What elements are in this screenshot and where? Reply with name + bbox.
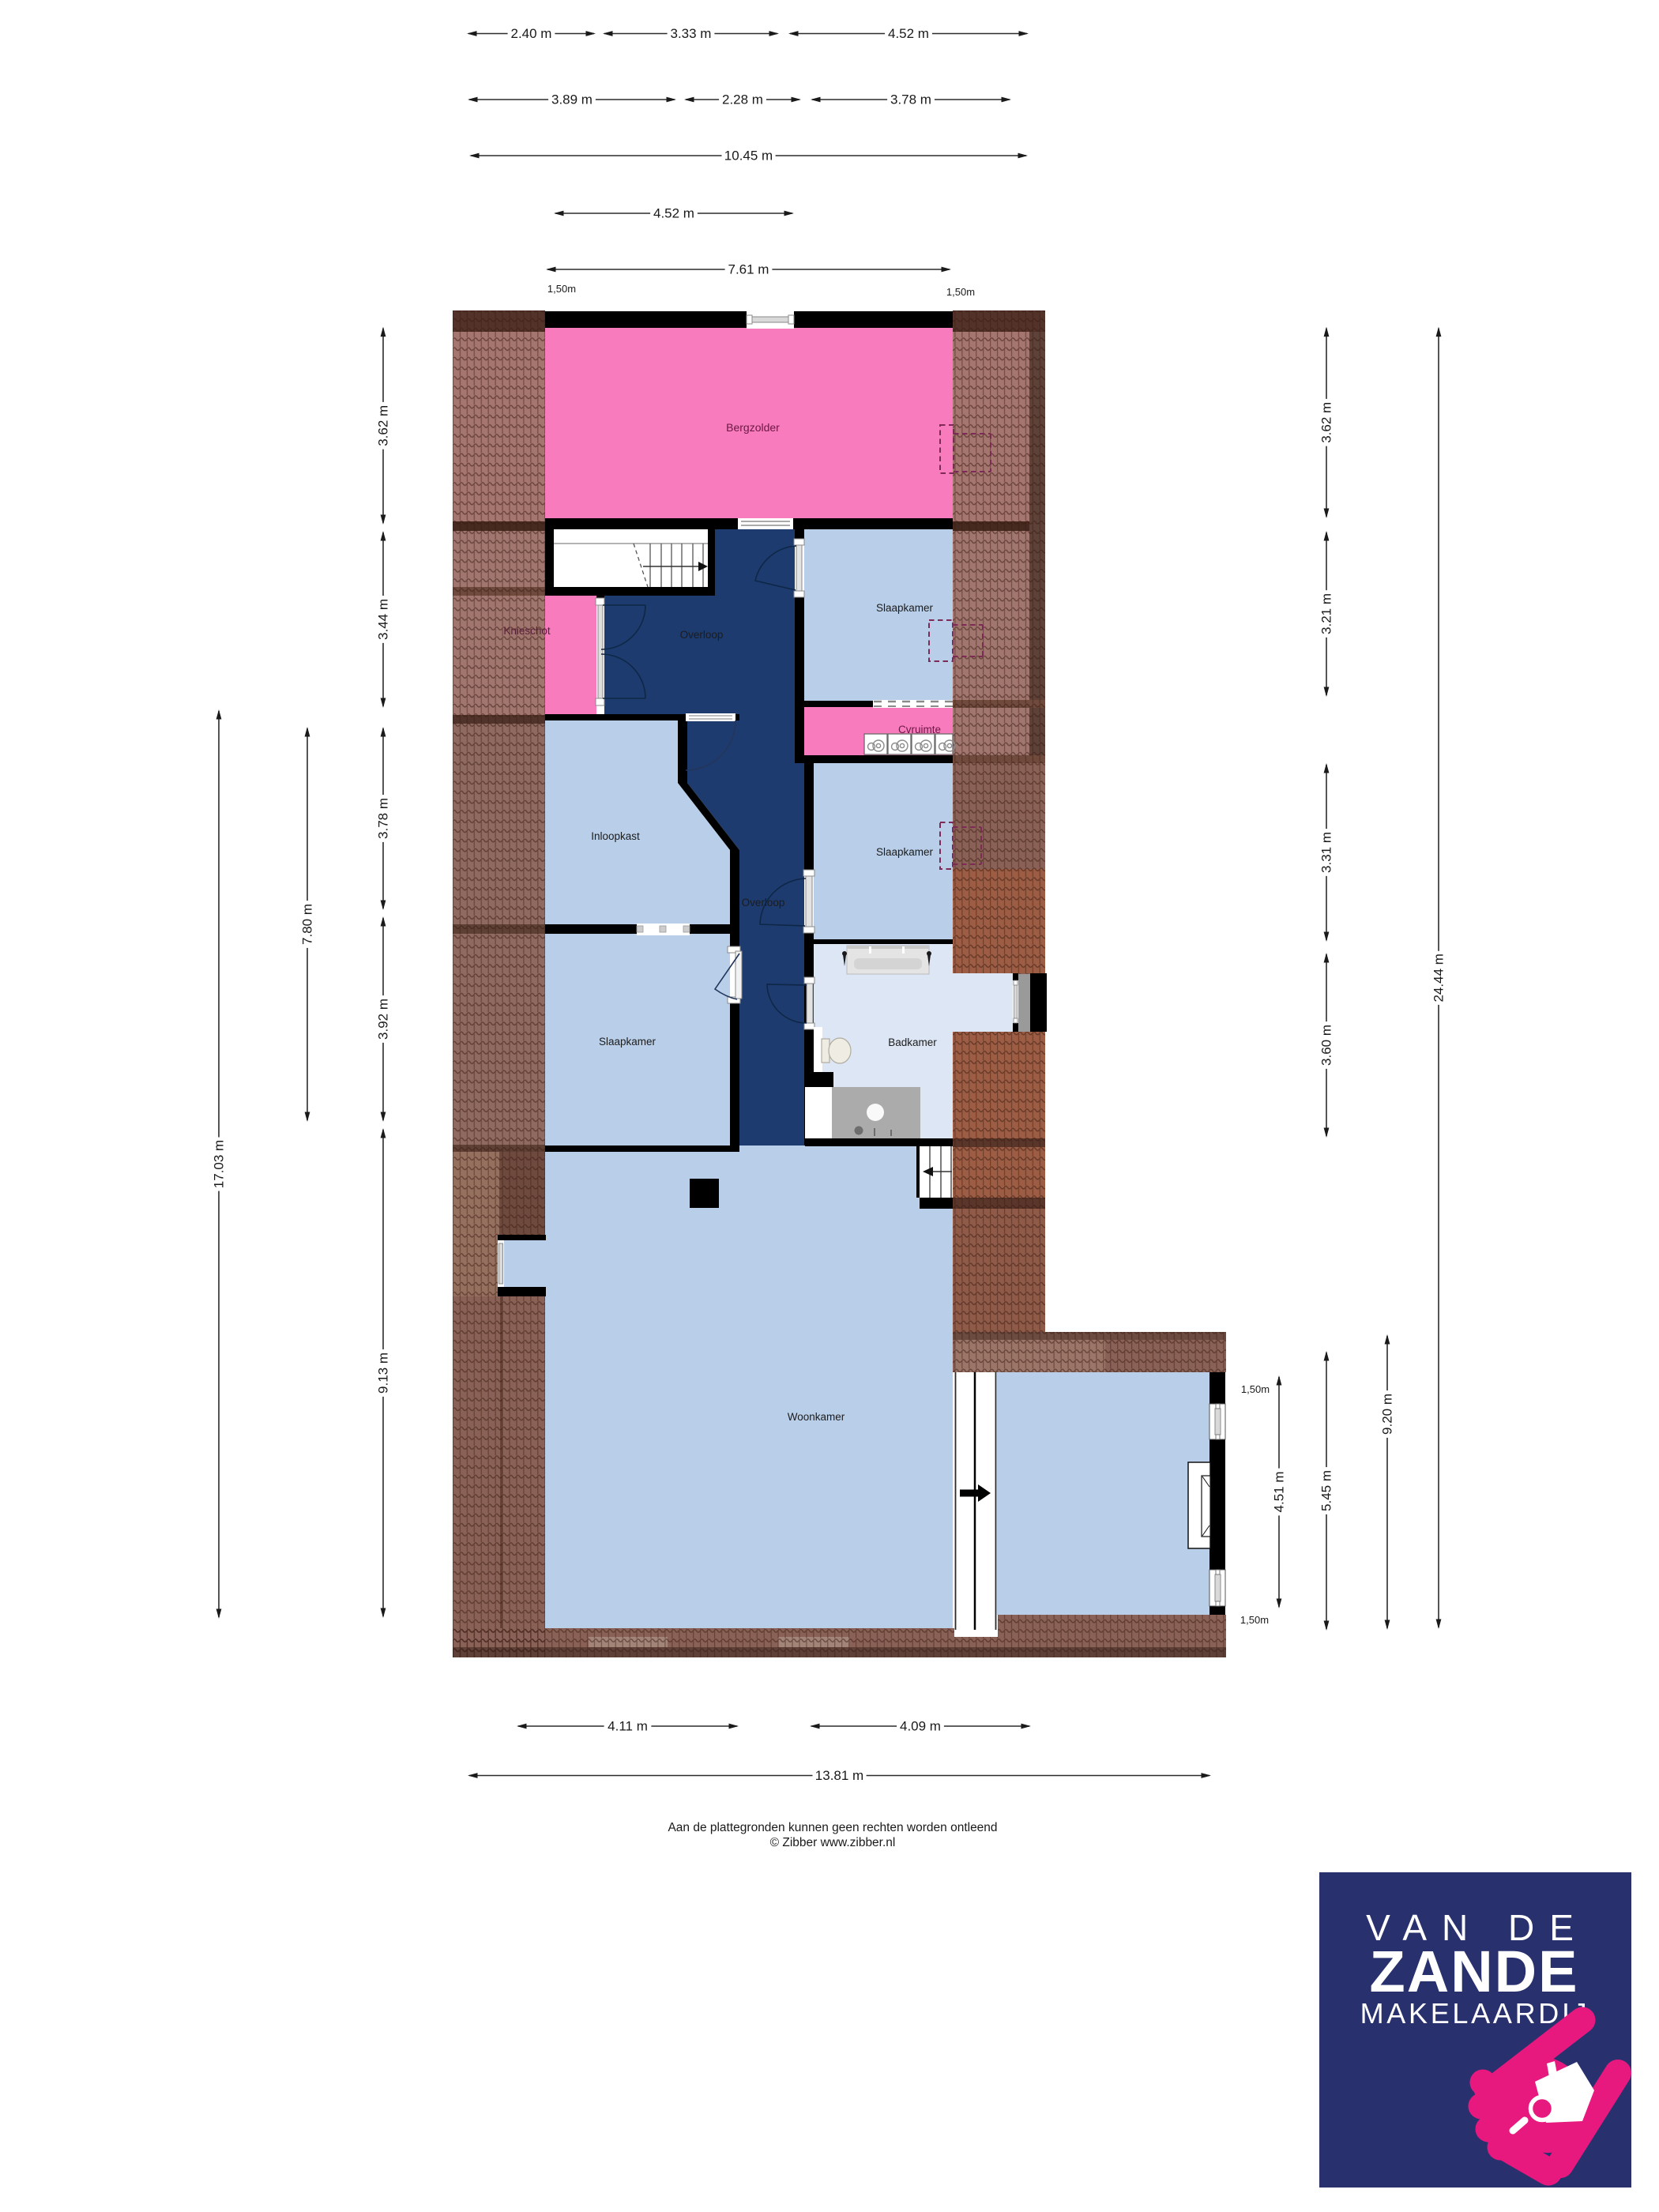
svg-text:Woonkamer: Woonkamer bbox=[788, 1411, 845, 1423]
svg-text:13.81 m: 13.81 m bbox=[815, 1768, 863, 1783]
svg-text:3.92 m: 3.92 m bbox=[376, 999, 391, 1040]
svg-text:1,50m: 1,50m bbox=[547, 283, 576, 295]
svg-text:Inloopkast: Inloopkast bbox=[591, 830, 640, 842]
svg-text:Knieschot: Knieschot bbox=[503, 625, 551, 637]
svg-text:3.21 m: 3.21 m bbox=[1319, 593, 1334, 634]
svg-text:Slaapkamer: Slaapkamer bbox=[876, 602, 934, 614]
svg-text:1,50m: 1,50m bbox=[946, 286, 975, 298]
svg-text:1,50m: 1,50m bbox=[1241, 1383, 1270, 1395]
svg-text:ZANDE: ZANDE bbox=[1370, 1939, 1579, 2004]
svg-text:3.44 m: 3.44 m bbox=[376, 599, 391, 640]
svg-text:3.78 m: 3.78 m bbox=[890, 92, 931, 107]
svg-text:© Zibber www.zibber.nl: © Zibber www.zibber.nl bbox=[770, 1836, 896, 1849]
svg-text:Badkamer: Badkamer bbox=[888, 1036, 937, 1048]
svg-text:4.52 m: 4.52 m bbox=[888, 26, 929, 41]
svg-text:7.61 m: 7.61 m bbox=[728, 262, 769, 277]
svg-text:Slaapkamer: Slaapkamer bbox=[876, 846, 934, 858]
svg-text:Aan de plattegronden kunnen ge: Aan de plattegronden kunnen geen rechten… bbox=[668, 1821, 997, 1834]
svg-text:4.52 m: 4.52 m bbox=[653, 206, 694, 221]
svg-text:2.28 m: 2.28 m bbox=[722, 92, 763, 107]
svg-text:3.60 m: 3.60 m bbox=[1319, 1025, 1334, 1066]
svg-text:Slaapkamer: Slaapkamer bbox=[599, 1036, 656, 1048]
svg-text:Bergzolder: Bergzolder bbox=[726, 421, 780, 434]
svg-text:5.45 m: 5.45 m bbox=[1319, 1470, 1334, 1511]
svg-text:24.44 m: 24.44 m bbox=[1431, 954, 1446, 1002]
svg-text:Overloop: Overloop bbox=[742, 897, 785, 908]
svg-text:4.09 m: 4.09 m bbox=[900, 1719, 941, 1734]
svg-text:3.89 m: 3.89 m bbox=[551, 92, 592, 107]
svg-text:3.78 m: 3.78 m bbox=[376, 798, 391, 839]
svg-text:9.13 m: 9.13 m bbox=[376, 1352, 391, 1394]
svg-text:7.80 m: 7.80 m bbox=[300, 904, 315, 945]
svg-text:3.62 m: 3.62 m bbox=[376, 405, 391, 446]
svg-text:3.62 m: 3.62 m bbox=[1319, 402, 1334, 443]
svg-text:4.11 m: 4.11 m bbox=[608, 1719, 648, 1734]
svg-text:Overloop: Overloop bbox=[680, 629, 724, 641]
svg-text:1,50m: 1,50m bbox=[1240, 1614, 1269, 1626]
svg-text:9.20 m: 9.20 m bbox=[1380, 1394, 1395, 1435]
svg-text:3.31 m: 3.31 m bbox=[1319, 832, 1334, 873]
svg-text:10.45 m: 10.45 m bbox=[724, 149, 773, 164]
svg-text:Cvruimte: Cvruimte bbox=[898, 724, 941, 735]
svg-text:4.51 m: 4.51 m bbox=[1272, 1472, 1287, 1513]
svg-text:3.33 m: 3.33 m bbox=[671, 26, 712, 41]
svg-text:17.03 m: 17.03 m bbox=[212, 1140, 227, 1188]
svg-text:2.40 m: 2.40 m bbox=[511, 26, 552, 41]
